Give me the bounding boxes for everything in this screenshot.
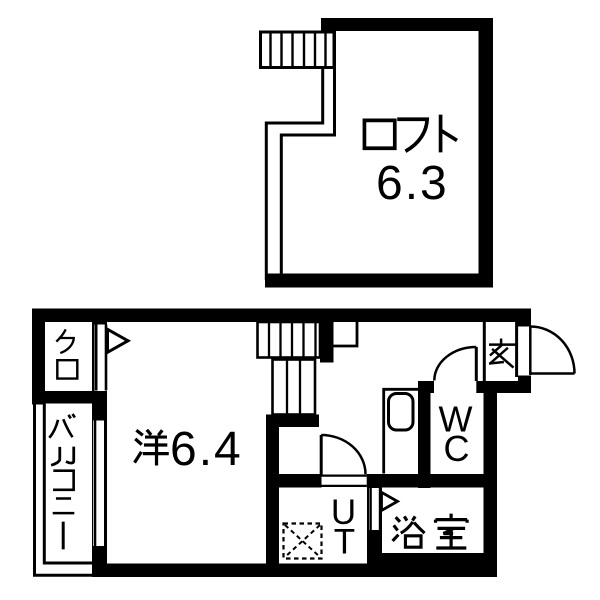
svg-text:6.4: 6.4 (170, 423, 243, 476)
svg-text:T: T (334, 523, 355, 562)
svg-text:6.3: 6.3 (376, 157, 449, 210)
svg-text:C: C (444, 428, 470, 469)
